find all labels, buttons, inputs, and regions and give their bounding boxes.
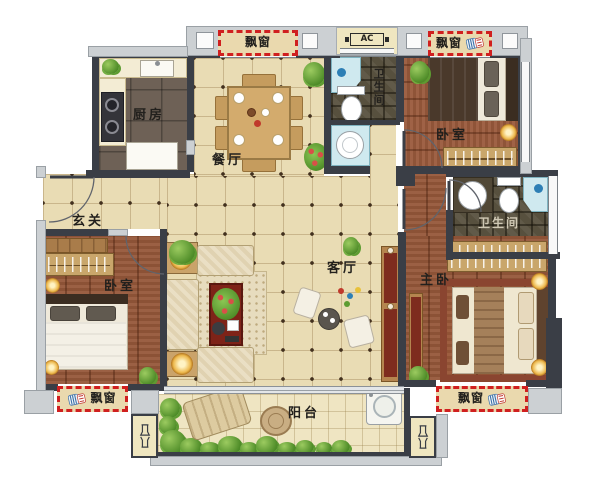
pillow-icon <box>518 292 534 324</box>
sofa <box>197 347 254 383</box>
stump-ring-icon <box>268 413 284 429</box>
cushion-icon <box>456 295 469 319</box>
washer-drum-icon <box>373 395 396 418</box>
plant-icon <box>139 367 156 385</box>
bay-window-label: 飘窗 <box>458 392 484 405</box>
shower-head-icon <box>534 184 543 193</box>
bathroom2-label: 卫生间 <box>478 217 520 230</box>
pillow-icon <box>50 306 80 321</box>
toilet-bowl-icon <box>341 96 362 122</box>
flower-centerpiece-icon <box>212 288 240 320</box>
bedroom1-label: 卧室 <box>104 280 136 294</box>
bay-window-label: 飘窗 <box>436 37 462 50</box>
pillow-icon <box>484 61 499 87</box>
pillow-icon <box>488 392 506 407</box>
door-jamb <box>108 229 128 236</box>
lamp-icon <box>44 360 59 375</box>
bay-window: 飘窗 <box>428 31 492 56</box>
wall <box>446 170 558 177</box>
toy-icon <box>344 301 350 307</box>
flue-shaft <box>409 416 436 458</box>
wall <box>446 252 560 259</box>
door-jamb <box>186 140 195 155</box>
dining-chair <box>289 96 303 120</box>
wardrobe <box>44 253 114 276</box>
bedroom2-label: 卧室 <box>436 129 468 143</box>
cup-icon <box>323 312 328 317</box>
bay-window: 飘窗 <box>436 386 528 412</box>
pillow-icon <box>484 91 499 117</box>
cup-icon <box>330 318 335 323</box>
toilet-icon <box>337 86 365 95</box>
remote-icon <box>225 336 239 342</box>
bay-window-label: 飘窗 <box>90 392 116 405</box>
bay-window: 飘窗 <box>218 30 298 56</box>
wall <box>324 52 331 173</box>
floor-plan: 飘窗 飘窗 飘窗 飘窗 AC 厨房 餐厅 玄关 客厅 卧室 卧室 主卧 卫生间 … <box>0 0 600 488</box>
kitchen-label: 厨房 <box>133 109 165 123</box>
wall <box>396 52 404 122</box>
pillow-icon <box>68 392 86 407</box>
trim-band <box>36 220 46 392</box>
flue-icon <box>417 423 429 451</box>
ac-badge: AC <box>350 33 384 46</box>
bed-headboard <box>506 57 518 121</box>
plant-icon <box>410 61 429 83</box>
sofa <box>197 245 254 276</box>
ac-label: AC <box>361 35 374 44</box>
structural-column <box>546 318 562 388</box>
wall <box>187 52 194 140</box>
toilet-bowl-icon <box>499 188 519 213</box>
trim-block <box>436 414 448 458</box>
shower-head-icon <box>337 68 346 77</box>
column-marker <box>406 33 422 49</box>
column-marker <box>302 33 318 49</box>
cabinet-panel <box>384 309 397 377</box>
wall <box>396 166 415 186</box>
trim-block <box>528 388 562 414</box>
toy-icon <box>338 288 344 294</box>
bathroom1-label: 卫生间 <box>372 60 384 114</box>
stove-burner-icon <box>105 120 119 134</box>
stove-burner-icon <box>105 98 119 112</box>
living-room-label: 客厅 <box>327 262 359 276</box>
trim-band <box>150 456 442 466</box>
shrub-icon <box>160 398 180 418</box>
plate-icon <box>272 92 284 104</box>
bay-window: 飘窗 <box>57 386 128 412</box>
bay-window-label: 飘窗 <box>245 36 271 49</box>
plant-icon <box>343 237 359 255</box>
dining-room-label: 餐厅 <box>212 154 244 168</box>
bed-blanket <box>428 57 478 121</box>
dresser <box>44 238 108 253</box>
hallway-floor <box>370 125 396 180</box>
trim-band <box>36 166 46 178</box>
cushion-icon <box>456 341 469 365</box>
wall <box>86 170 190 178</box>
pillow-icon <box>518 328 534 360</box>
column-marker <box>502 33 518 49</box>
sofa <box>164 279 199 350</box>
plant-icon <box>169 240 195 264</box>
lamp-icon <box>531 273 548 290</box>
column-marker <box>196 32 214 49</box>
dining-chair <box>289 126 303 150</box>
lamp-icon <box>171 353 193 375</box>
entry-hall-label: 玄关 <box>72 215 104 229</box>
wall <box>324 166 370 174</box>
cabinet-panel <box>411 297 421 374</box>
dish-icon <box>247 108 256 117</box>
pillow-icon <box>86 306 116 321</box>
trim-block <box>131 390 159 414</box>
cabinet-panel <box>384 253 397 303</box>
flue-icon <box>139 422 151 450</box>
window-glaze <box>548 176 558 254</box>
trim-band <box>88 46 188 57</box>
bed-runner <box>474 287 504 374</box>
lamp-icon <box>500 124 517 141</box>
sliding-door <box>164 386 404 394</box>
dish-icon <box>254 120 261 127</box>
master-bedroom-label: 主卧 <box>420 274 452 288</box>
plate-icon <box>233 92 245 104</box>
bed-headboard <box>44 294 128 304</box>
flue-shaft <box>131 414 158 458</box>
tray-icon <box>212 322 225 335</box>
wall <box>400 380 436 387</box>
bed-duvet <box>46 322 126 368</box>
ac-badge-tick <box>345 37 349 42</box>
trim-block <box>24 390 54 414</box>
wall <box>92 50 99 177</box>
wall <box>36 229 108 236</box>
balcony-label: 阳台 <box>288 407 320 421</box>
toy-icon <box>347 293 353 299</box>
wall <box>324 120 400 125</box>
cabinet-knob-icon <box>387 247 394 254</box>
window-glaze <box>340 48 394 54</box>
pillow-icon <box>466 36 484 51</box>
toy-icon <box>355 287 361 293</box>
plate-icon <box>272 134 284 146</box>
cabinet-knob-icon <box>387 303 394 310</box>
toilet-icon <box>497 177 521 186</box>
dish-icon <box>261 108 270 117</box>
window-glaze <box>521 62 530 162</box>
sink-icon <box>458 181 487 210</box>
plate-icon <box>233 134 245 146</box>
faucet-icon <box>155 61 160 66</box>
wall <box>398 232 406 387</box>
ac-badge-tick <box>385 37 389 42</box>
wall <box>160 229 167 391</box>
kitchen-island <box>126 142 178 170</box>
plant-icon <box>303 62 325 86</box>
lamp-icon <box>45 278 60 293</box>
side-table <box>318 308 340 330</box>
plant-icon <box>102 59 119 74</box>
sink-basin-icon <box>342 137 358 153</box>
note-paper <box>227 320 239 331</box>
